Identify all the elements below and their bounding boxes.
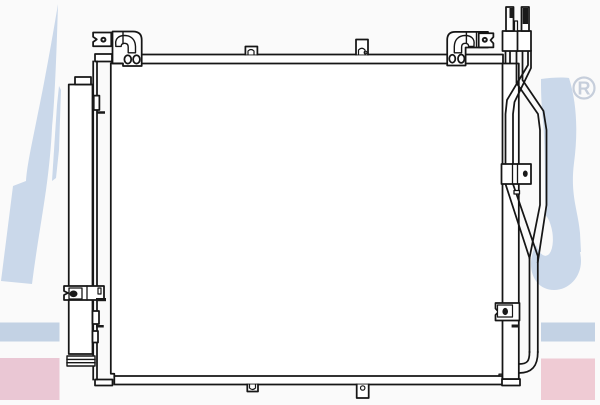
svg-text:R: R <box>578 79 591 99</box>
